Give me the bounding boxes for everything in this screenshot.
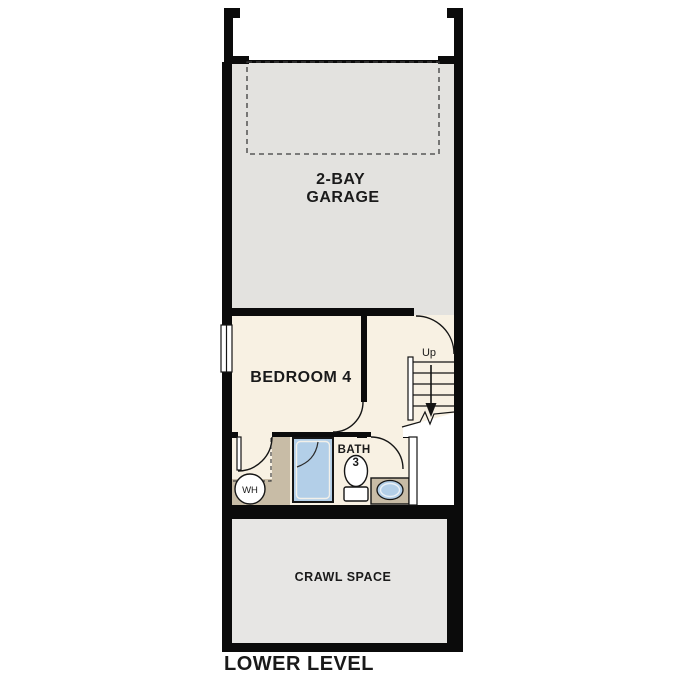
floor-plan-drawing: Up WH 2-BAY GARAGE BEDROOM 4 BATH 3 CRAW…	[0, 0, 687, 687]
toilet-tank	[344, 487, 368, 501]
level-label: LOWER LEVEL	[224, 653, 374, 675]
driveway-wall-left-foot	[224, 56, 249, 64]
driveway-wall-right	[454, 8, 463, 64]
bedroom-partition-wall	[361, 315, 367, 402]
garage-label-line1: 2-BAY	[316, 171, 365, 188]
bath-side-wall	[409, 437, 417, 505]
driveway-wall-left	[224, 8, 233, 64]
bath-wall-seg-2	[272, 432, 357, 437]
driveway-wall-left-notch	[233, 8, 240, 18]
bath-label-line2: 3	[353, 457, 360, 469]
bath-wall-seg-3	[357, 432, 367, 438]
stair-handrail	[408, 357, 413, 420]
crawl-space-label: CRAWL SPACE	[295, 570, 392, 584]
garage-house-wall	[222, 308, 414, 316]
shower	[293, 438, 333, 502]
left-exterior-wall	[222, 62, 232, 505]
garage-label-line2: GARAGE	[306, 189, 379, 206]
driveway-wall-right-foot	[438, 56, 463, 64]
stairs-up-label: Up	[422, 347, 436, 359]
closet-door-leaf	[237, 437, 241, 470]
bedroom-window	[221, 325, 232, 372]
right-exterior-wall	[454, 62, 463, 505]
bath-label-line1: BATH	[338, 444, 371, 456]
floor-plan-page: Up WH 2-BAY GARAGE BEDROOM 4 BATH 3 CRAW…	[0, 0, 687, 687]
garage-label: 2-BAY GARAGE	[306, 171, 379, 206]
water-heater-label: WH	[242, 485, 258, 496]
driveway-wall-right-notch	[447, 8, 454, 18]
bath-wall-seg-4	[367, 432, 371, 437]
closet-cabinet-side	[272, 437, 290, 505]
bedroom-label: BEDROOM 4	[250, 369, 351, 386]
